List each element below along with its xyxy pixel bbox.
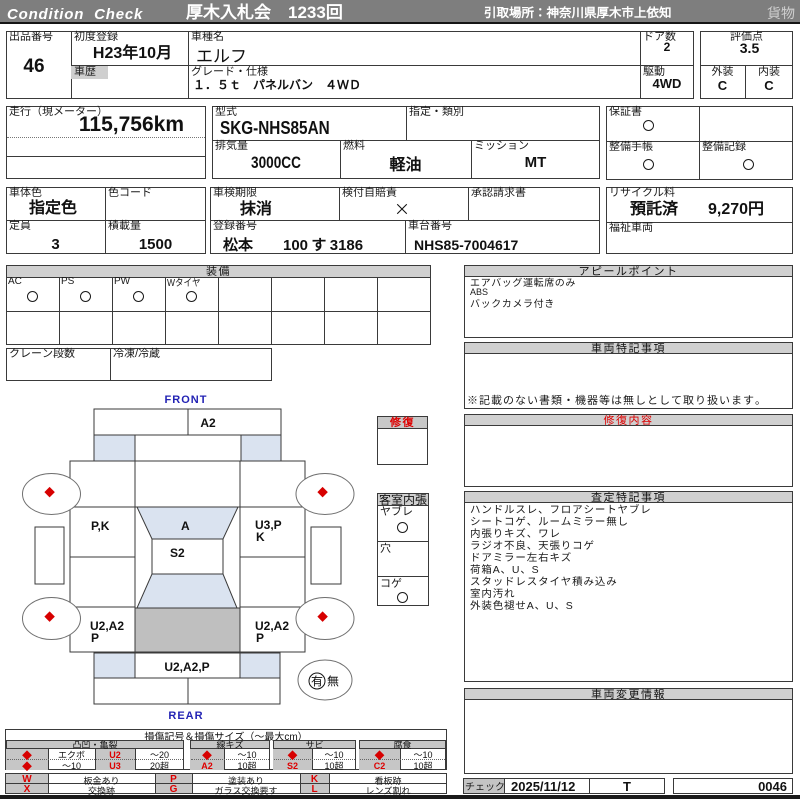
svg-text:A2: A2 <box>200 416 216 430</box>
svg-text:S2: S2 <box>170 546 185 560</box>
svg-text:有: 有 <box>311 673 323 690</box>
svg-text:P,K: P,K <box>91 519 110 533</box>
svg-text:U2,A2,P: U2,A2,P <box>164 660 209 674</box>
svg-text:A: A <box>181 519 190 533</box>
svg-text:P: P <box>91 631 99 645</box>
svg-text:P: P <box>256 631 264 645</box>
svg-text:K: K <box>256 530 265 544</box>
svg-text:無: 無 <box>327 673 339 690</box>
